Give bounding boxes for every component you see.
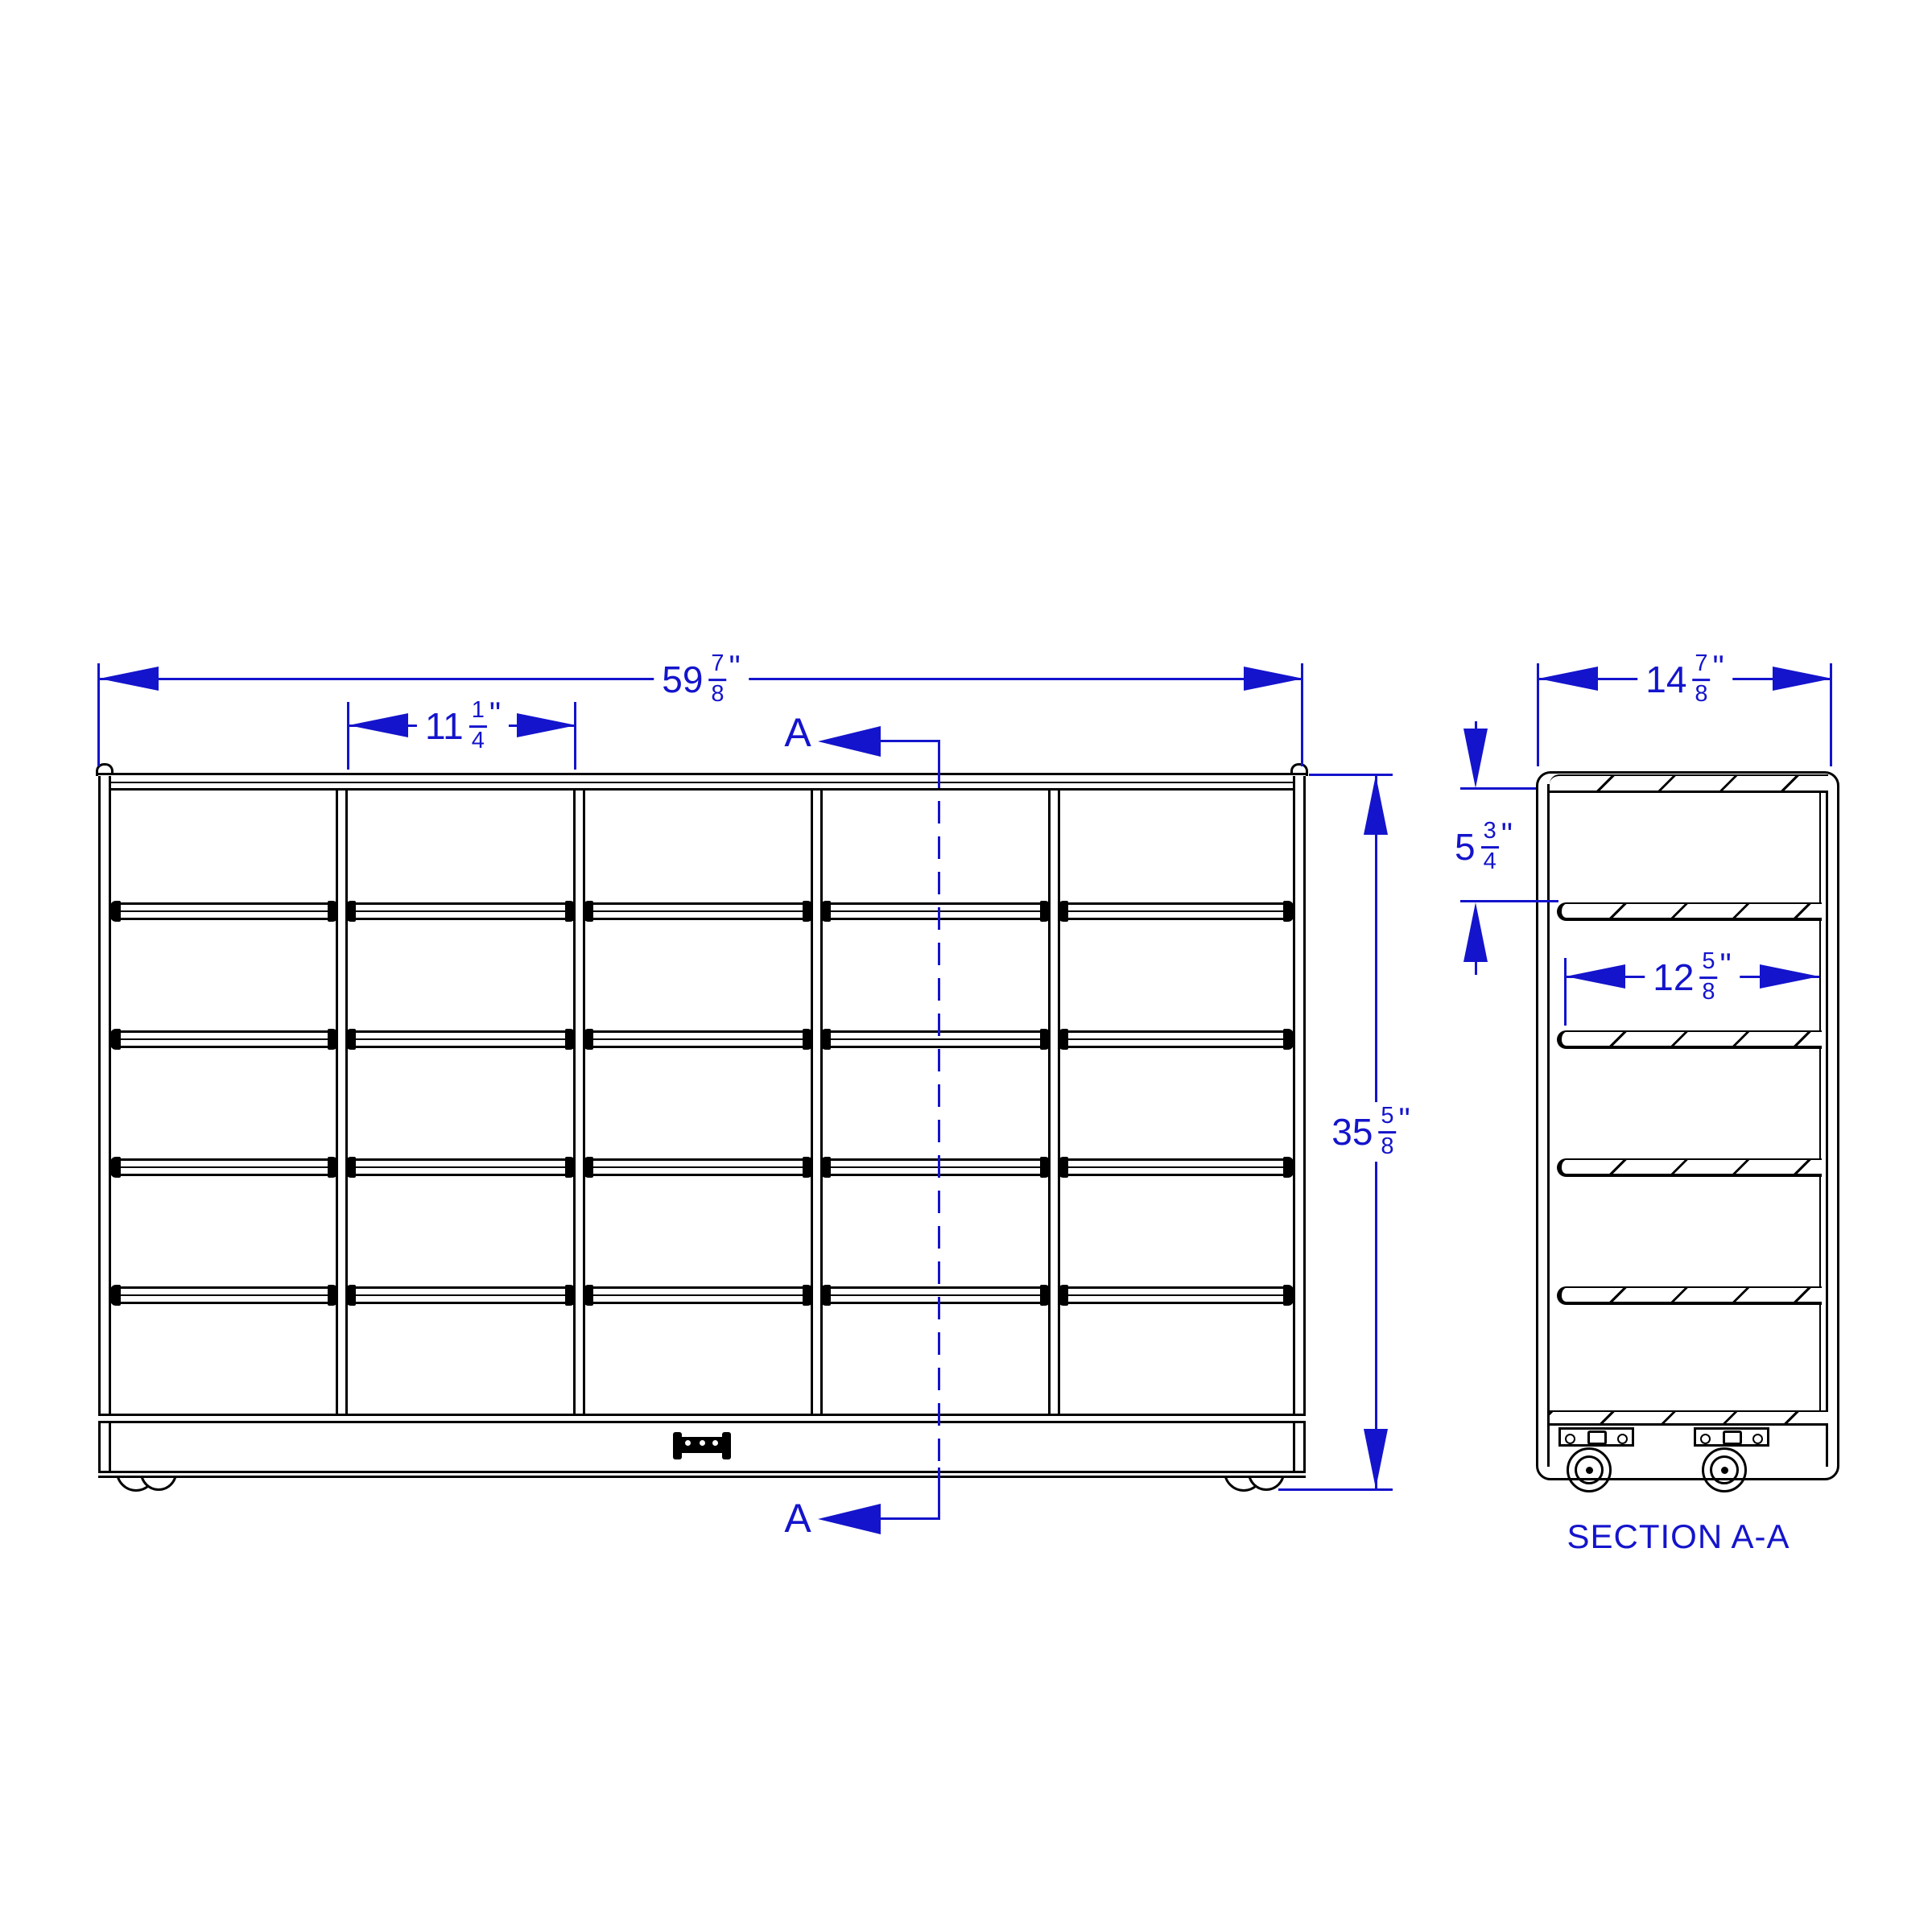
front-top-band: [98, 773, 1306, 791]
arrow-down-icon: [1463, 729, 1488, 788]
tray-rail: [348, 1158, 573, 1176]
front-bottom-band: [98, 1471, 1306, 1478]
section-leader-top: [877, 740, 940, 742]
section-back-stop-line: [1819, 792, 1821, 1412]
section-top-panel: [1550, 774, 1828, 793]
tray-rail: [1060, 902, 1291, 920]
drawing-canvas: SECTION A-A 59 78 " 11 14 " 35 58 " A A: [0, 0, 1932, 1932]
tray-rail: [823, 1030, 1048, 1048]
section-caster-plate: [1694, 1427, 1769, 1447]
depth-dimension-text: 14 78 ": [1637, 650, 1732, 709]
tray-rail: [585, 902, 811, 920]
tray-rail: [113, 1158, 336, 1176]
arrow-left-icon: [1566, 964, 1625, 989]
opening-arrow-stem-bottom: [1475, 962, 1477, 975]
section-shelf: [1557, 1286, 1822, 1305]
section-leader-bottom: [877, 1517, 940, 1520]
cubby-divider: [811, 791, 823, 1414]
tray-rail: [823, 1158, 1048, 1176]
tray-rail: [823, 1286, 1048, 1304]
section-shelf: [1557, 902, 1822, 921]
tray-rail: [1060, 1030, 1291, 1048]
tray-rail: [348, 902, 573, 920]
section-left-wall-inner-line: [1547, 784, 1550, 1467]
section-marker-bottom-label: A: [784, 1495, 811, 1542]
tray-rail: [823, 902, 1048, 920]
tray-rail: [113, 1030, 336, 1048]
arrow-left-icon: [349, 713, 408, 737]
tray-rail: [348, 1030, 573, 1048]
cubby-divider: [573, 791, 585, 1414]
column-dimension-text: 11 14 ": [417, 696, 509, 756]
width-dimension-text: 59 78 ": [654, 650, 749, 709]
tray-rail: [585, 1030, 811, 1048]
shelf-depth-dimension-text: 12 58 ": [1645, 947, 1740, 1007]
section-shelf: [1557, 1030, 1822, 1049]
front-left-wall: [98, 776, 111, 1477]
section-right-wall-inner-line: [1826, 784, 1828, 1467]
section-caster-plate: [1558, 1427, 1634, 1447]
tray-rail: [348, 1286, 573, 1304]
arrow-right-icon: [1773, 667, 1832, 691]
arrow-up-icon: [1364, 775, 1388, 835]
section-shelf: [1557, 1158, 1822, 1177]
tray-rail: [1060, 1286, 1291, 1304]
section-cut-line-dashed: [938, 766, 940, 1468]
arrow-left-icon: [1538, 667, 1598, 691]
section-cut-line-bottom: [938, 1468, 940, 1520]
cubby-divider: [336, 791, 348, 1414]
arrow-up-icon: [1463, 902, 1488, 962]
front-floor-band: [98, 1414, 1306, 1423]
tray-rail: [1060, 1158, 1291, 1176]
section-cut-line-top: [938, 740, 940, 766]
arrow-down-icon: [1364, 1429, 1388, 1488]
section-outline: [1536, 771, 1839, 1480]
front-right-wall: [1293, 776, 1306, 1477]
arrow-left-icon: [99, 667, 159, 691]
tray-rail: [585, 1158, 811, 1176]
cubby-divider: [1048, 791, 1060, 1414]
tray-rail: [585, 1286, 811, 1304]
section-marker-top-label: A: [784, 709, 811, 756]
arrow-right-icon: [1760, 964, 1819, 989]
tray-rail: [113, 1286, 336, 1304]
section-bottom-panel: [1550, 1410, 1828, 1426]
height-dimension-text: 35 58 ": [1323, 1102, 1418, 1162]
arrow-right-icon: [1244, 667, 1303, 691]
tray-rail: [113, 902, 336, 920]
arrow-right-icon: [517, 713, 576, 737]
opening-dimension-text: 5 34 ": [1455, 819, 1513, 875]
section-arrow-bottom-icon: [818, 1504, 881, 1534]
base-handle: [673, 1432, 731, 1461]
section-arrow-top-icon: [818, 726, 881, 757]
section-title: SECTION A-A: [1567, 1517, 1790, 1556]
